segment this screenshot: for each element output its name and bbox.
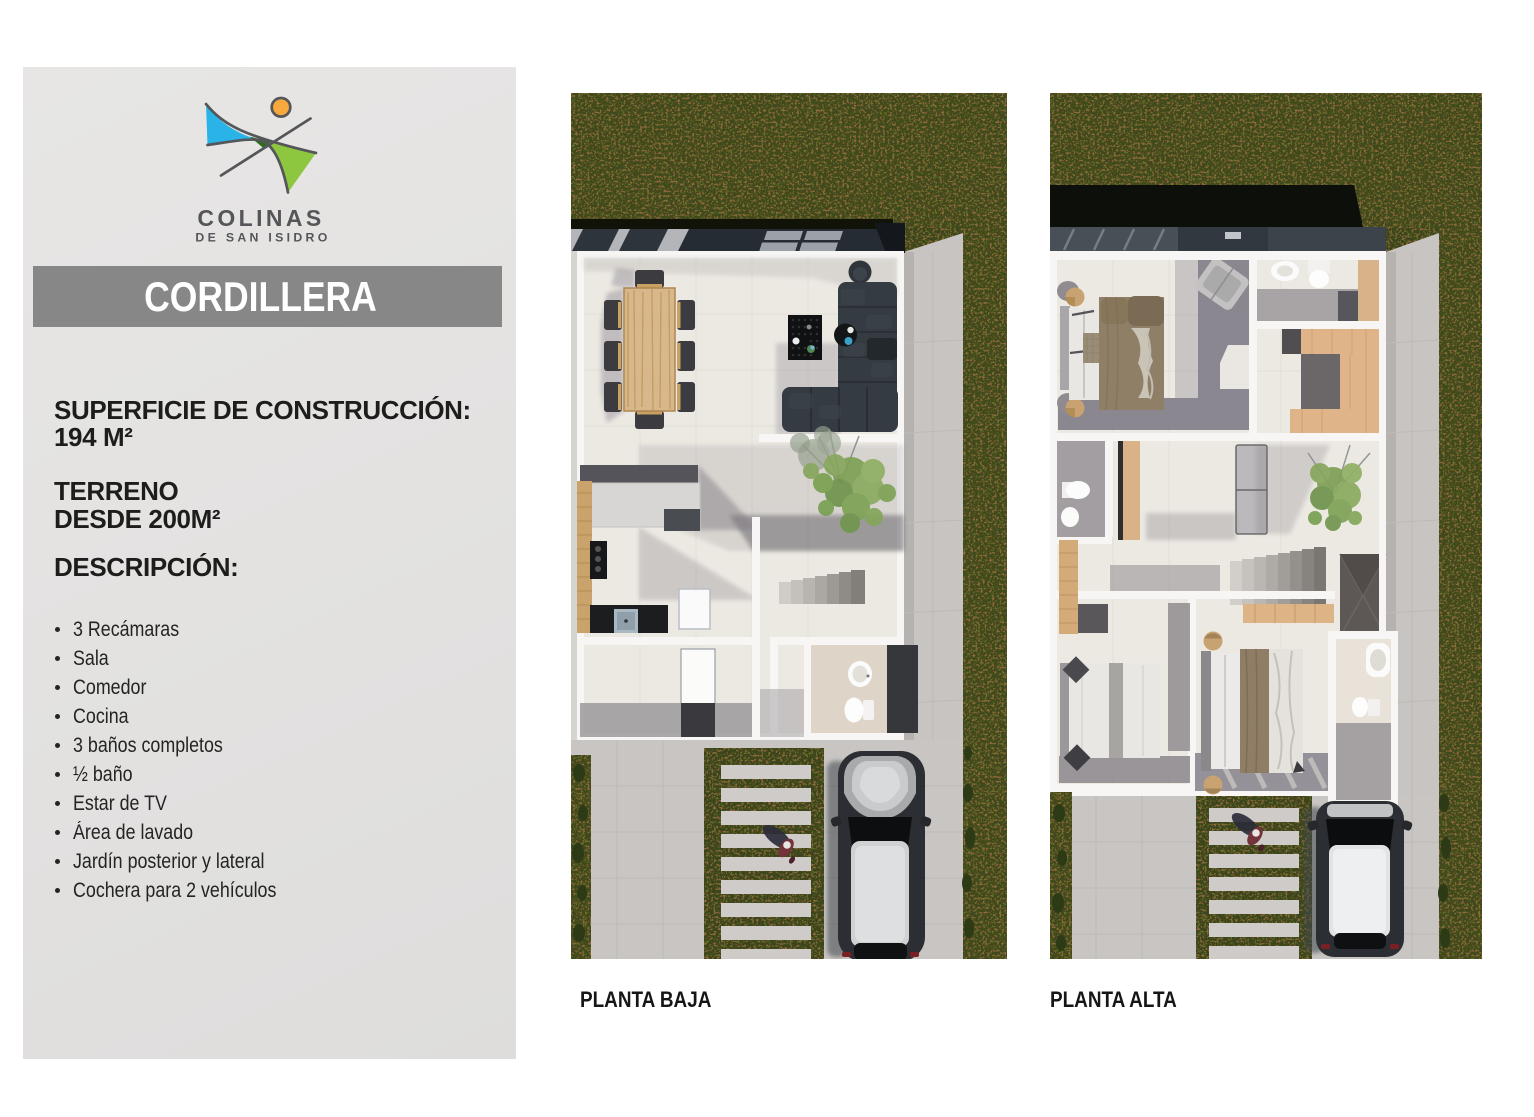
svg-text:DE SAN ISIDRO: DE SAN ISIDRO [195,231,330,245]
svg-text:COLINAS: COLINAS [197,205,324,231]
